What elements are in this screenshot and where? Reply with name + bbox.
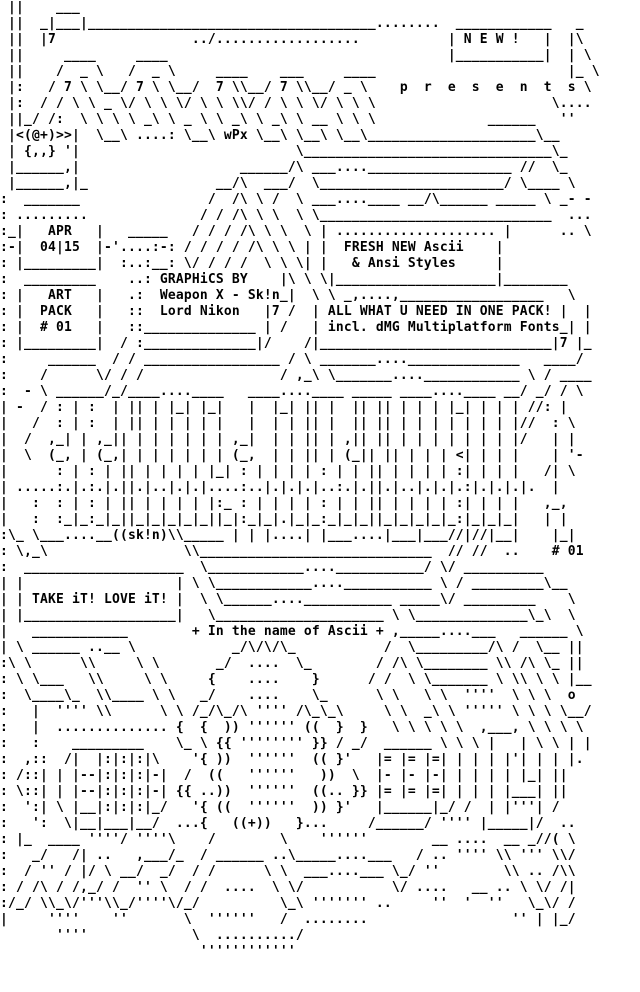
pack-number-label <box>536 552 580 570</box>
fresh-styles-box <box>472 224 634 288</box>
ascii-art-page: || ___ || _|___|________________________… <box>0 0 640 992</box>
group-logo <box>40 40 360 140</box>
credits-box <box>134 252 314 352</box>
art-pack-box <box>14 288 92 378</box>
machine-art <box>80 640 520 940</box>
new-badge <box>396 16 492 64</box>
presents-label <box>356 92 556 114</box>
mascot-icon <box>8 118 72 162</box>
date-box <box>14 208 92 272</box>
take-it-box <box>8 576 184 620</box>
artist-signature <box>104 540 168 558</box>
tagline-label <box>208 620 404 640</box>
all-in-one-box <box>370 296 634 372</box>
